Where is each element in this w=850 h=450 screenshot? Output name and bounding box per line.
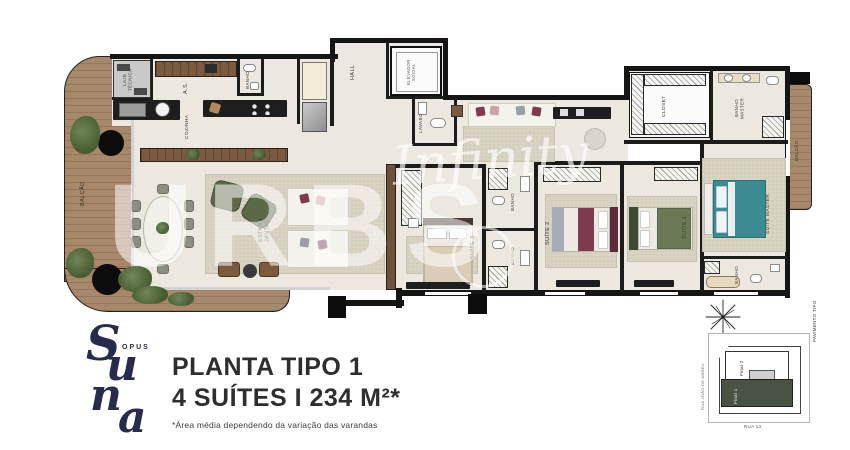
wardrobe-suite1 bbox=[654, 167, 698, 181]
wall bbox=[386, 43, 389, 99]
round-column bbox=[98, 130, 124, 156]
logo-letter-a: a bbox=[118, 392, 147, 443]
closet-shelves bbox=[631, 74, 644, 135]
sink bbox=[770, 264, 780, 272]
ac-unit bbox=[134, 88, 147, 95]
label-banho-suite1: BANHO bbox=[734, 264, 739, 286]
plant bbox=[66, 248, 94, 278]
appliance bbox=[560, 109, 568, 116]
wall bbox=[443, 38, 448, 100]
keymap: Final 2 Final 1 bbox=[708, 333, 810, 423]
bed-suite2 bbox=[552, 207, 618, 252]
sink bbox=[742, 74, 751, 82]
deck-balcony-right bbox=[788, 84, 812, 210]
appliance bbox=[576, 109, 584, 116]
wall bbox=[386, 96, 446, 99]
bed-master bbox=[704, 180, 766, 238]
wall bbox=[237, 93, 264, 96]
window bbox=[640, 292, 678, 295]
sink bbox=[250, 82, 259, 90]
dresser-suite2 bbox=[556, 280, 600, 287]
label-closet: CLOSET bbox=[662, 92, 668, 120]
wall bbox=[788, 72, 810, 84]
compass-icon bbox=[702, 296, 744, 338]
sofa-pillow bbox=[516, 106, 526, 116]
shower bbox=[704, 261, 720, 274]
label-elevador: ELEVADOR SOCIAL bbox=[406, 54, 420, 90]
wall bbox=[710, 70, 713, 142]
sofa-pillow bbox=[531, 106, 541, 116]
floor-plan: LAJE TÉCNICA A.S. BANHO COZINHA HALL ELE… bbox=[0, 0, 850, 340]
toilet bbox=[750, 274, 762, 283]
plan-footnote: *Área média dependendo da variação das v… bbox=[172, 420, 472, 430]
wall bbox=[110, 54, 338, 59]
side-table bbox=[451, 105, 463, 117]
headboard bbox=[610, 207, 618, 252]
keymap-final1-block bbox=[721, 379, 793, 407]
window bbox=[786, 120, 790, 176]
label-area-servico: A.S. bbox=[183, 80, 190, 96]
street-bottom-label: RUA 13 bbox=[744, 424, 761, 429]
label-cozinha: COZINHA bbox=[185, 112, 191, 142]
wall bbox=[443, 95, 628, 100]
wall bbox=[237, 58, 240, 96]
cooktop-item bbox=[205, 64, 217, 73]
headboard bbox=[629, 207, 638, 250]
keymap-final2-label: Final 2 bbox=[739, 354, 744, 376]
keymap-final1-label: Final 1 bbox=[733, 382, 738, 404]
bed-sheet-fold bbox=[728, 182, 735, 236]
label-balcao-dir: BALCÃO bbox=[794, 138, 799, 164]
bed-throw bbox=[578, 208, 594, 251]
toilet bbox=[430, 118, 446, 128]
toilet bbox=[766, 76, 779, 85]
pier-column bbox=[468, 294, 487, 314]
bed-pillow bbox=[598, 231, 608, 249]
bed-pillow bbox=[598, 211, 608, 229]
plant bbox=[168, 292, 194, 306]
street-left-label: RUA JOÃO DE ABREU bbox=[700, 352, 705, 410]
label-banho-cozinha: BANHO bbox=[245, 68, 250, 92]
bed-pillow bbox=[716, 211, 727, 233]
window bbox=[545, 292, 585, 295]
label-hall: HALL bbox=[350, 62, 357, 82]
pavement-label: PAVIMENTO TIPO bbox=[812, 296, 817, 342]
opus-suna-logo: S OPUS u n a bbox=[62, 322, 182, 447]
wall bbox=[624, 66, 790, 71]
label-laje-tecnica: LAJE TÉCNICA bbox=[122, 64, 133, 96]
sink bbox=[520, 250, 530, 266]
closet-shelves bbox=[644, 74, 706, 86]
stove-burners bbox=[246, 102, 272, 115]
window bbox=[714, 292, 758, 295]
shower-master bbox=[762, 116, 784, 138]
watermark-seal bbox=[452, 226, 514, 288]
plan-title-line1: PLANTA TIPO 1 bbox=[172, 352, 472, 383]
plant bbox=[70, 116, 100, 154]
label-balcao-esq: BALCÃO bbox=[80, 180, 87, 208]
sink bbox=[724, 74, 733, 82]
label-suite-master: SUÍTE MASTER bbox=[766, 192, 779, 236]
wall bbox=[297, 58, 300, 124]
label-suite1: SUÍTE 1 bbox=[682, 212, 689, 242]
closet-shelves bbox=[644, 123, 706, 135]
wall bbox=[624, 140, 788, 144]
dresser-suite1 bbox=[634, 280, 674, 287]
bed-pillow bbox=[640, 211, 650, 228]
fridge bbox=[302, 102, 327, 132]
label-banho-suite3: BANHO bbox=[510, 190, 515, 214]
title-block: PLANTA TIPO 1 4 SUÍTES I 234 M²* *Área m… bbox=[172, 352, 472, 430]
pier-column bbox=[328, 296, 346, 318]
wall bbox=[330, 38, 448, 43]
kitchen-counter-top bbox=[155, 61, 237, 77]
sofa-pillow bbox=[490, 106, 500, 116]
bed-pillow bbox=[716, 186, 727, 208]
label-suite2: SUÍTE 2 bbox=[545, 218, 552, 248]
wall bbox=[620, 164, 624, 292]
bed-bench bbox=[552, 208, 564, 251]
dishwasher bbox=[119, 103, 146, 117]
wall bbox=[261, 58, 264, 96]
bed-pillow bbox=[640, 230, 650, 247]
floor-plan-page: LAJE TÉCNICA A.S. BANHO COZINHA HALL ELE… bbox=[0, 0, 850, 450]
plan-title-line2: 4 SUÍTES I 234 M²* bbox=[172, 383, 472, 414]
label-banho-master: BANHO MASTER bbox=[734, 90, 748, 126]
wall bbox=[330, 58, 334, 126]
bed-bench bbox=[704, 183, 713, 235]
wall bbox=[700, 256, 788, 259]
sofa-pillow bbox=[475, 106, 485, 116]
pantry-cabinet bbox=[302, 62, 327, 100]
round-sink bbox=[155, 102, 170, 117]
